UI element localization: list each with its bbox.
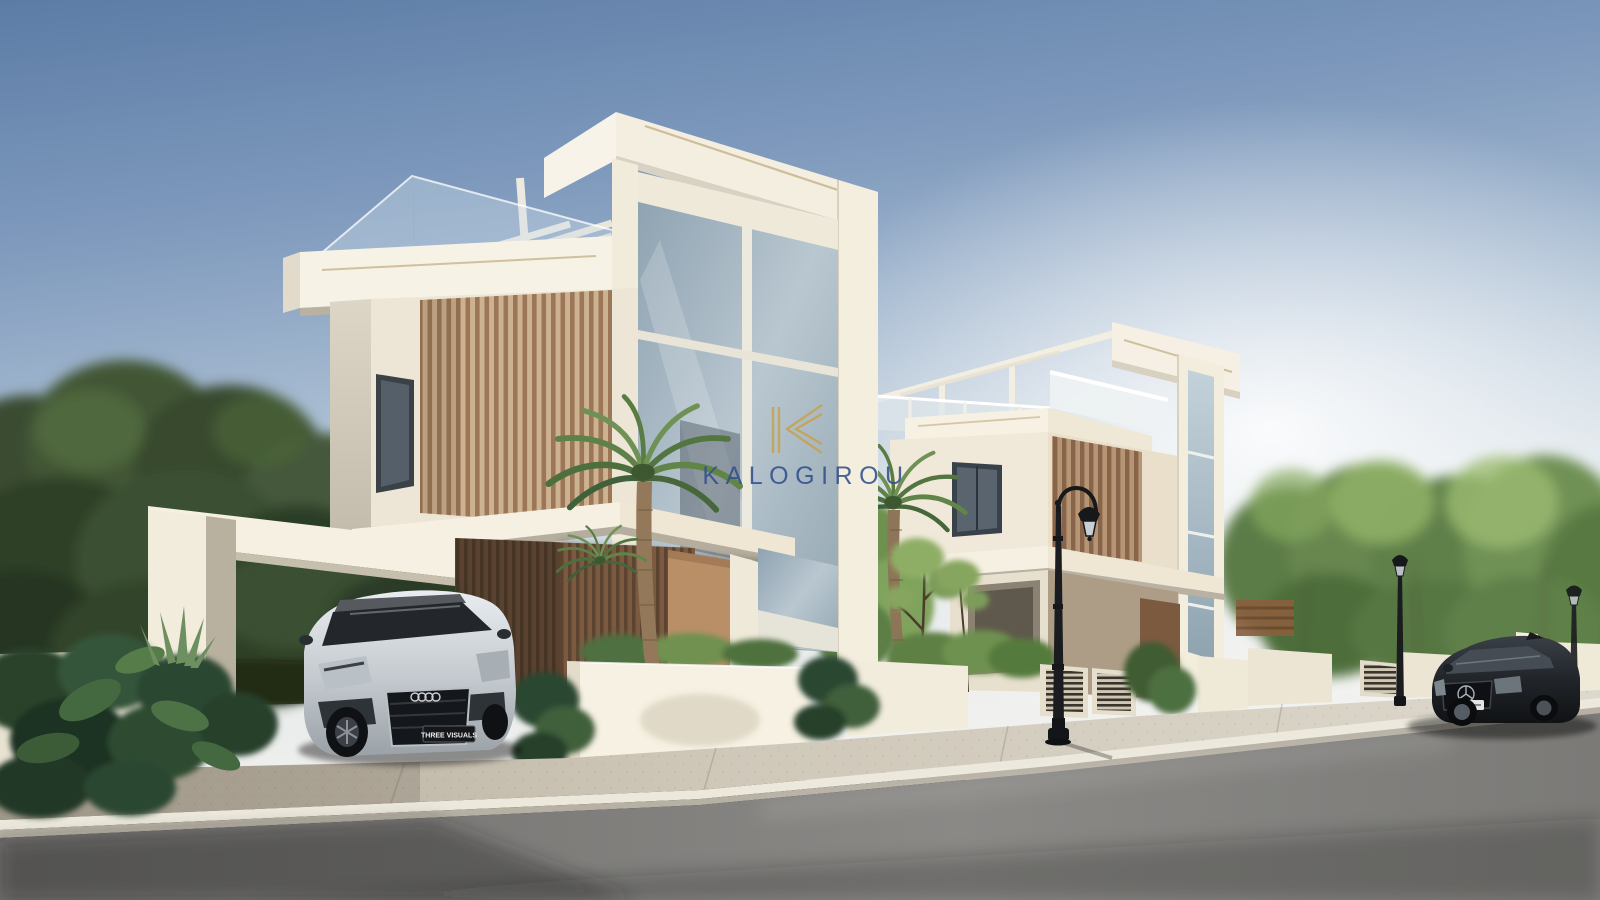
portal-right-pier (838, 180, 878, 714)
car-wheel (1447, 698, 1477, 726)
watermark-brand-text: KALOGIROU (702, 462, 909, 490)
car-headlight (1494, 676, 1522, 694)
scene-canvas: THREE VISUALS (0, 0, 1600, 900)
distant-pergola (1236, 600, 1294, 636)
villa-left-window (376, 374, 414, 493)
villa-right-tall-pier (1178, 354, 1224, 700)
license-plate-front: THREE VISUALS (421, 726, 477, 742)
villa-right-pier-glass (1188, 370, 1214, 660)
villa-left-side-face (330, 299, 371, 546)
plate-text: THREE VISUALS (421, 733, 477, 740)
car-wheel (326, 707, 368, 757)
villa-right-window (952, 462, 1002, 537)
car-wheel (1530, 695, 1558, 721)
car-headlight (476, 650, 510, 682)
car-headlight (1434, 679, 1446, 696)
architectural-render: THREE VISUALS (0, 0, 1600, 900)
car-silver: THREE VISUALS (298, 590, 522, 766)
